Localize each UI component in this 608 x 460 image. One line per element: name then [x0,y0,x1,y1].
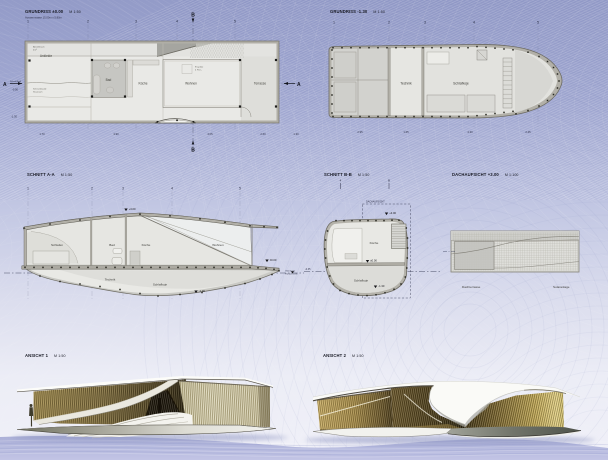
svg-text:+3.00: +3.00 [389,211,396,215]
svg-text:GRUNDRISS ±0.00M 1:50: GRUNDRISS ±0.00M 1:50 [25,9,81,14]
svg-text:1.30: 1.30 [293,132,299,136]
svg-text:1: 1 [27,187,29,191]
svg-text:Wohnen: Wohnen [212,243,224,247]
svg-text:4.30: 4.30 [467,130,473,134]
svg-text:Abstellraum: Abstellraum [33,46,45,49]
svg-text:B: B [191,13,195,19]
svg-text:2.95: 2.95 [357,130,363,134]
svg-text:B: B [388,179,390,183]
svg-text:1.70: 1.70 [39,132,45,136]
svg-text:Essplatz: Essplatz [195,66,203,69]
svg-text:Schrankwand: Schrankwand [33,88,47,91]
svg-text:3: 3 [122,187,124,191]
svg-text:Küche: Küche [370,241,379,245]
svg-text:2.45: 2.45 [525,130,531,134]
svg-text:2.60: 2.60 [260,132,266,136]
svg-text:4.90: 4.90 [113,132,119,136]
svg-text:Schlafen: Schlafen [51,243,63,247]
svg-text:1: 1 [27,20,29,24]
svg-text:±0.00: ±0.00 [270,258,277,262]
svg-text:Technik: Technik [400,82,412,86]
svg-text:-1.30: -1.30 [199,289,206,293]
svg-text:Technik: Technik [105,278,116,282]
svg-text:A: A [3,82,7,88]
svg-text:Schlafkoje: Schlafkoje [453,82,469,86]
svg-text:Stauraum: Stauraum [33,90,43,93]
svg-text:4: 4 [176,20,178,24]
svg-text:Dachterrasse: Dachterrasse [462,285,481,289]
svg-text:Terrasse: Terrasse [254,82,266,86]
svg-text:4: 4 [473,21,475,25]
svg-text:SCHNITT B-BM 1:50: SCHNITT B-BM 1:50 [324,172,369,177]
svg-text:GRUNDRISS -1.30M 1:50: GRUNDRISS -1.30M 1:50 [330,9,385,14]
svg-text:Bad: Bad [106,78,112,82]
svg-text:1.65: 1.65 [403,130,409,134]
svg-text:ANSICHT 1M 1:50: ANSICHT 1M 1:50 [25,353,66,358]
svg-text:SCHNITT A-AM 1:50: SCHNITT A-AM 1:50 [27,172,72,177]
svg-text:-0.90: -0.90 [12,88,18,92]
svg-text:Schlafkoje: Schlafkoje [354,279,369,283]
svg-text:Oberkante: Oberkante [285,270,296,273]
svg-text:Bad: Bad [109,243,115,247]
svg-text:DACHAUFSICHT: DACHAUFSICHT [366,201,385,204]
svg-text:DACHAUFSICHT +3.00M 1:100: DACHAUFSICHT +3.00M 1:100 [452,172,519,177]
svg-text:Schnitt A-A: Schnitt A-A [10,80,21,83]
svg-text:-1.30: -1.30 [378,284,385,288]
svg-text:Küche: Küche [138,82,147,86]
svg-text:3: 3 [424,21,426,25]
svg-text:Solaranlage: Solaranlage [553,285,570,289]
svg-text:Ankleide: Ankleide [40,54,52,58]
svg-text:5: 5 [234,20,236,24]
svg-text:5: 5 [537,21,539,25]
svg-text:Wohnen: Wohnen [185,82,197,86]
svg-text:Schlafkoje: Schlafkoje [153,283,168,287]
svg-text:5: 5 [239,187,241,191]
svg-text:3: 3 [135,20,137,24]
svg-text:2: 2 [91,187,93,191]
svg-text:4 Pers.: 4 Pers. [195,68,202,71]
svg-text:4: 4 [171,187,173,191]
svg-text:Ponton -0.35: Ponton -0.35 [285,272,298,275]
svg-text:4.05: 4.05 [207,132,213,136]
svg-text:ANSICHT 2M 1:50: ANSICHT 2M 1:50 [323,353,364,358]
svg-text:4m²: 4m² [33,48,37,51]
svg-text:Küche: Küche [142,243,151,247]
svg-text:±0.00: ±0.00 [370,259,377,263]
svg-text:-0.35: -0.35 [305,268,311,271]
svg-text:Aussenmasse 15.00m x 5.80m: Aussenmasse 15.00m x 5.80m [25,16,63,20]
svg-text:2: 2 [87,20,89,24]
svg-text:1: 1 [333,21,335,25]
svg-text:-1.30: -1.30 [11,115,17,119]
svg-text:A: A [297,82,301,88]
svg-text:+3.00: +3.00 [129,207,136,211]
svg-text:B: B [191,148,195,154]
svg-text:2: 2 [388,21,390,25]
